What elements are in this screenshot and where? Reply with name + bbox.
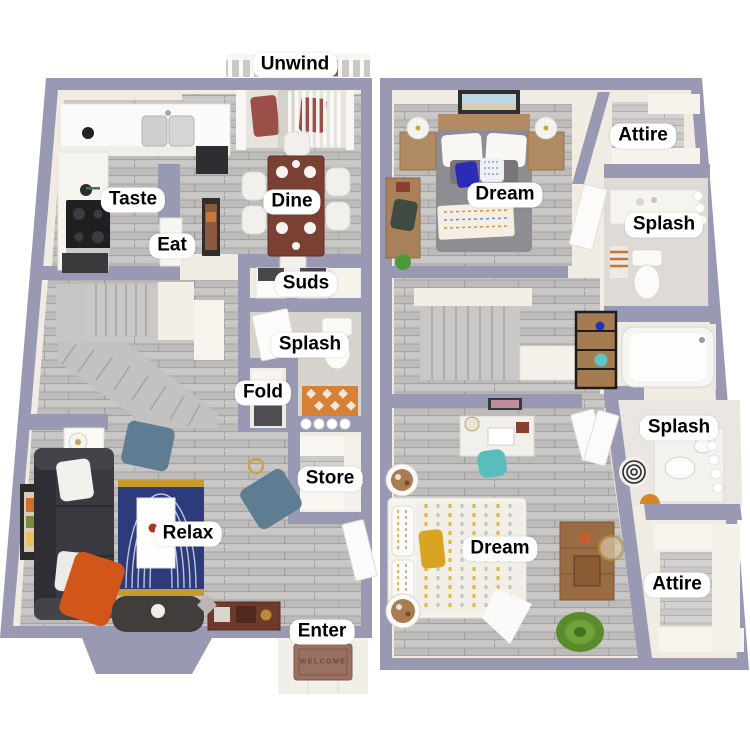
- desk-item: [396, 182, 410, 192]
- mirror: [599, 536, 623, 560]
- sink: [665, 457, 695, 479]
- toilet-tank: [632, 250, 662, 266]
- decor-bottle: [596, 322, 605, 331]
- closet-shelf: [612, 148, 700, 164]
- room-label-dream-front: Dream: [467, 183, 542, 208]
- stair-wall: [414, 288, 532, 306]
- room-label-unwind: Unwind: [253, 53, 338, 78]
- sofa: [34, 448, 127, 628]
- stair-half-wall: [158, 282, 194, 340]
- candle: [151, 604, 165, 618]
- kitchen-sink: [142, 116, 167, 146]
- pillow: [392, 506, 414, 556]
- plant2: [556, 612, 604, 652]
- tub-faucet: [699, 337, 705, 343]
- stair-upper-flight: [86, 284, 158, 336]
- room-label-splash-back: Splash: [640, 416, 718, 441]
- decor-box: [236, 606, 256, 623]
- closet-shelf: [712, 524, 740, 652]
- room-label-splash1: Splash: [271, 333, 349, 358]
- decor-teapot: [595, 354, 608, 367]
- room-label-attire-back: Attire: [644, 573, 710, 598]
- etagere-shelf: [576, 312, 616, 388]
- welcome-mat-text: WELCOME: [299, 659, 346, 666]
- room-label-dream-back: Dream: [462, 537, 537, 562]
- floorplan-image: Unwind Taste Eat Dine Suds Splash Fold S…: [0, 0, 750, 750]
- desk-lamp: [465, 417, 479, 431]
- decor-jar: [579, 532, 591, 544]
- room-label-store: Store: [298, 467, 363, 492]
- laptop: [488, 428, 514, 445]
- kitchen-sink: [169, 116, 194, 146]
- closet-shelf: [648, 94, 700, 114]
- patio-chair-seen-through-door: [250, 95, 280, 137]
- faucet: [165, 110, 171, 116]
- room-label-attire-front: Attire: [610, 124, 676, 149]
- room-label-taste: Taste: [101, 188, 165, 213]
- room-label-enter: Enter: [290, 620, 355, 645]
- stair-closet: [194, 300, 224, 360]
- room-label-suds: Suds: [275, 272, 337, 297]
- desk-item: [516, 422, 529, 433]
- room-label-fold: Fold: [235, 381, 291, 406]
- door-jamb: [236, 90, 246, 150]
- base-cabinet: [62, 253, 108, 273]
- laundry-shelf: [334, 268, 360, 298]
- desk-chair: [390, 198, 419, 232]
- accent-pillow: [418, 529, 446, 569]
- desk-chair: [476, 448, 507, 479]
- throw-pillow: [55, 458, 94, 502]
- room-label-relax: Relax: [155, 522, 222, 547]
- toilet: [634, 265, 660, 299]
- first-floor-plan: [0, 54, 377, 694]
- room-label-eat: Eat: [149, 234, 195, 259]
- stair-flight: [420, 306, 520, 380]
- decor-frame: [214, 607, 230, 622]
- door-jamb: [346, 90, 354, 150]
- pot: [82, 127, 94, 139]
- room-label-splash-front: Splash: [625, 213, 703, 238]
- entry-stoop: [82, 638, 212, 674]
- tub-room: [622, 327, 714, 387]
- stair-landing: [56, 284, 86, 340]
- pan: [80, 184, 92, 196]
- decor-box: [574, 556, 600, 586]
- stair-railing: [520, 346, 584, 380]
- room-label-dine: Dine: [263, 190, 320, 215]
- dishwasher: [196, 146, 228, 174]
- plant: [395, 254, 411, 270]
- decor-plate: [261, 610, 272, 621]
- throw-blanket: [437, 202, 515, 240]
- floorplan-render: [0, 0, 750, 750]
